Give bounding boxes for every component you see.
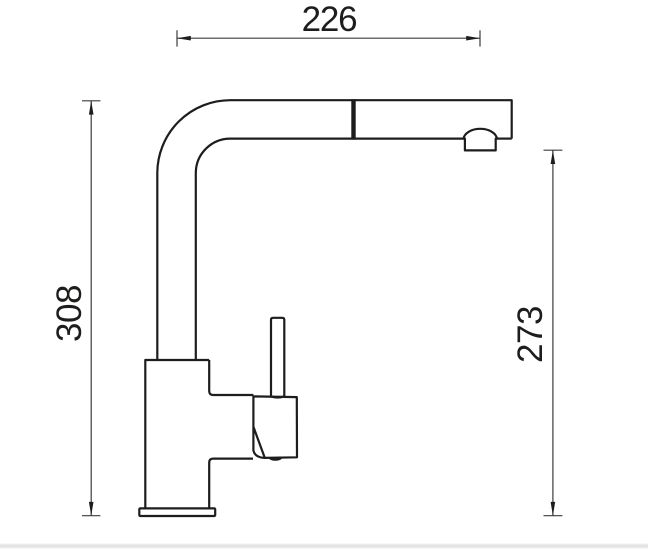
svg-text:226: 226 [302, 0, 357, 39]
svg-text:308: 308 [50, 285, 89, 342]
svg-text:273: 273 [511, 306, 550, 363]
